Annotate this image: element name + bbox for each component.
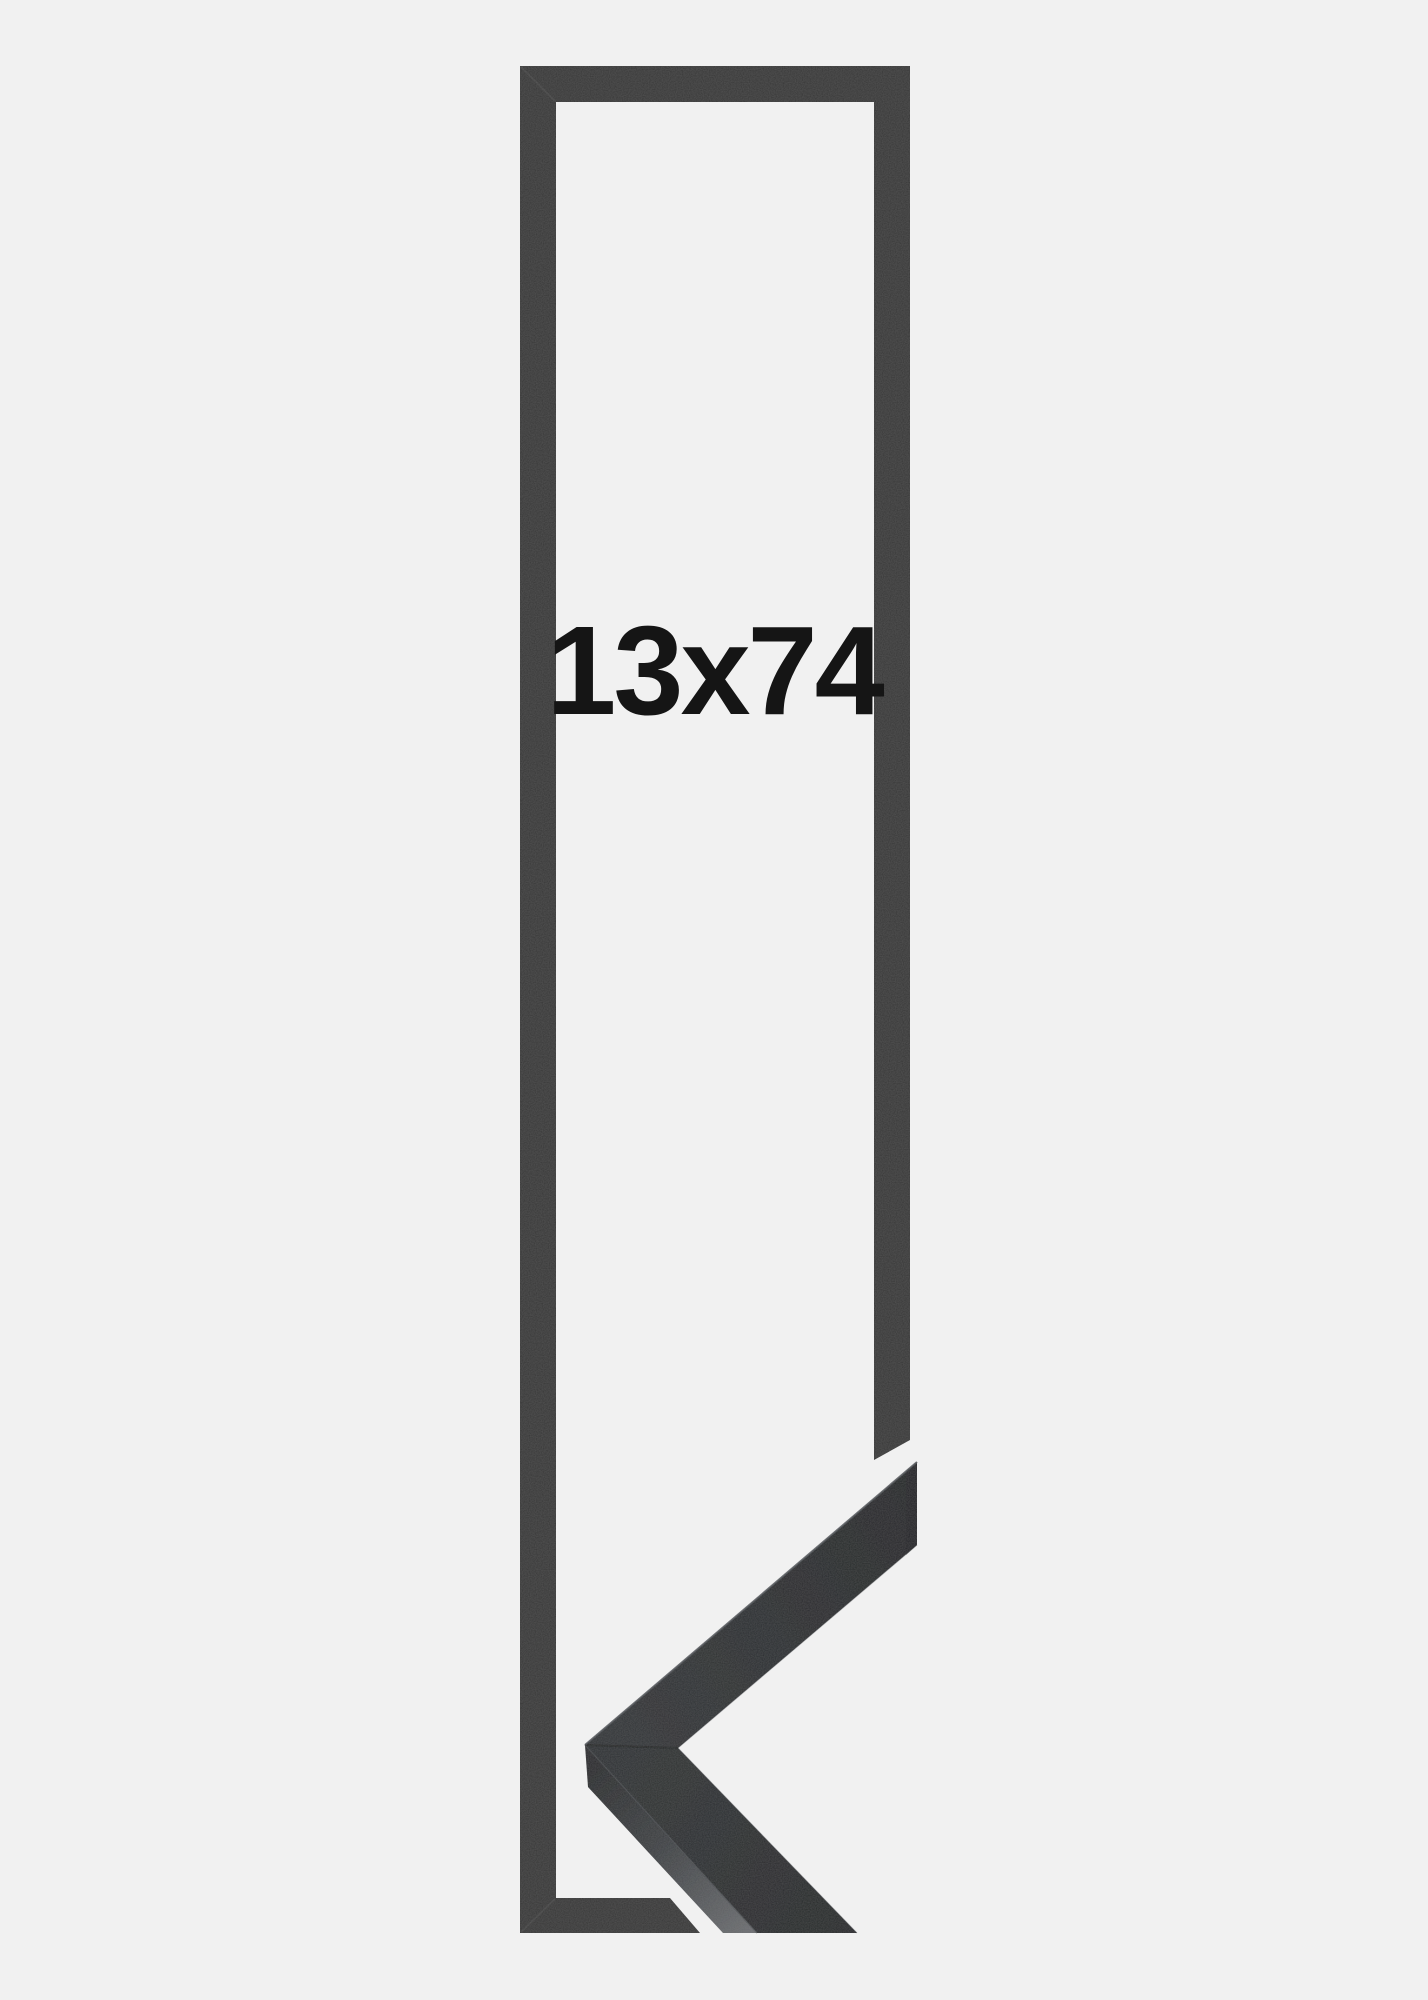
frame-outline-right-bar bbox=[874, 66, 910, 1460]
frame-size-diagram bbox=[0, 0, 1428, 2000]
frame-outline-bottom-bar bbox=[520, 1898, 700, 1933]
product-image: 13x74 bbox=[0, 0, 1428, 2000]
frame-outline-top-bar bbox=[520, 66, 910, 102]
size-label: 13x74 bbox=[0, 608, 1428, 734]
moulding-top-edge-highlight bbox=[585, 1462, 917, 1745]
moulding-corner-sample bbox=[585, 1462, 917, 1933]
frame-outline-left-bar bbox=[520, 66, 556, 1933]
moulding-upper-arm-end-cut bbox=[906, 1462, 917, 1555]
